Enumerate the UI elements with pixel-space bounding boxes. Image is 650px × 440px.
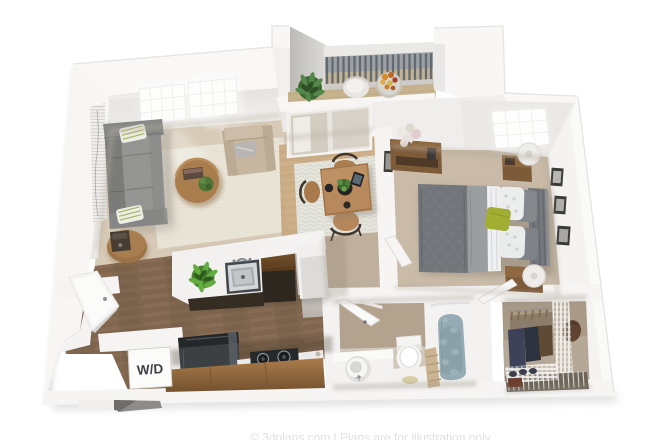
svg-text:© 3dplans.com | Plans are fo: © 3dplans.com | Plans are for illustrati… xyxy=(250,431,491,440)
svg-text:W/D: W/D xyxy=(136,361,163,378)
